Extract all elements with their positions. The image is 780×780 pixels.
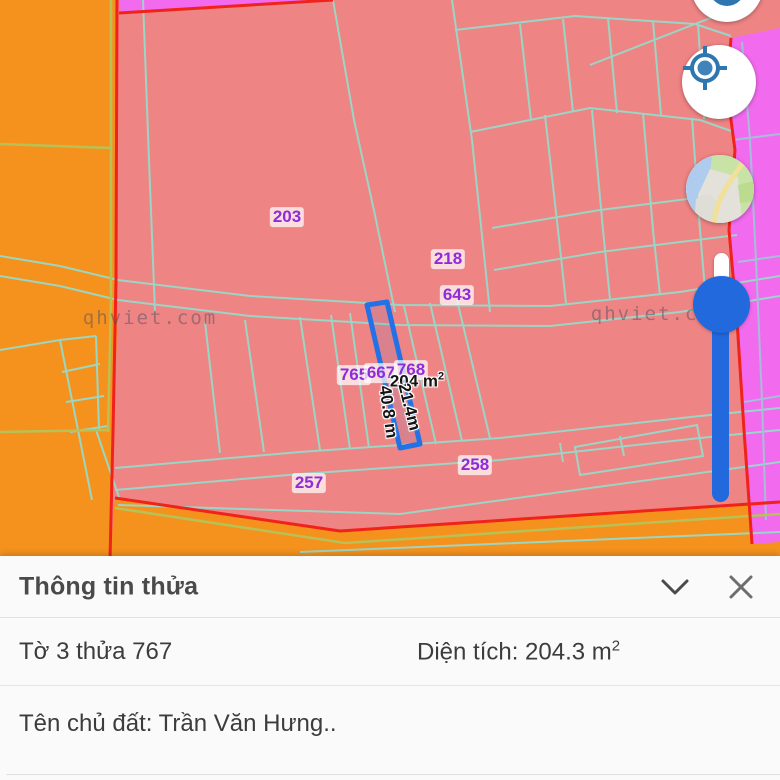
parcel-number-label: 257: [292, 473, 326, 493]
compass-icon: [709, 0, 745, 6]
info-panel: Thông tin thửa Tờ 3 thửa 767 Diện tích: …: [0, 556, 780, 780]
sheet-parcel-value: Tờ 3 thửa 767: [19, 638, 172, 666]
zoom-slider-knob[interactable]: [693, 276, 750, 333]
close-panel-button[interactable]: [724, 570, 758, 604]
parcel-summary-row: Tờ 3 thửa 767 Diện tích: 204.3 m2: [0, 618, 780, 686]
map-canvas[interactable]: qhviet.com qhviet.com 203218643765667768…: [0, 0, 780, 560]
collapse-panel-button[interactable]: [658, 570, 692, 604]
watermark: qhviet.com: [83, 307, 217, 329]
base-map-switcher-button[interactable]: [686, 155, 754, 223]
gps-locate-button[interactable]: [682, 45, 756, 119]
gps-locate-icon: [682, 45, 728, 91]
close-icon: [729, 575, 753, 599]
owner-name-value: Tên chủ đất: Trần Văn Hưng..: [19, 710, 337, 738]
zone-orange-left: [0, 0, 118, 560]
parcel-number-label: 218: [431, 249, 465, 269]
bottom-divider: [6, 774, 780, 775]
area-value: Diện tích: 204.3 m2: [417, 637, 620, 666]
panel-header: Thông tin thửa: [0, 556, 780, 618]
panel-title: Thông tin thửa: [19, 572, 198, 601]
owner-row: Tên chủ đất: Trần Văn Hưng..: [0, 686, 780, 762]
parcel-number-label: 643: [440, 285, 474, 305]
app-screen: qhviet.com qhviet.com 203218643765667768…: [0, 0, 780, 780]
mini-map-icon: [686, 155, 754, 223]
cadastral-map-layers: [0, 0, 780, 560]
parcel-number-label: 258: [458, 455, 492, 475]
chevron-down-icon: [660, 578, 690, 596]
parcel-number-label: 203: [270, 207, 304, 227]
